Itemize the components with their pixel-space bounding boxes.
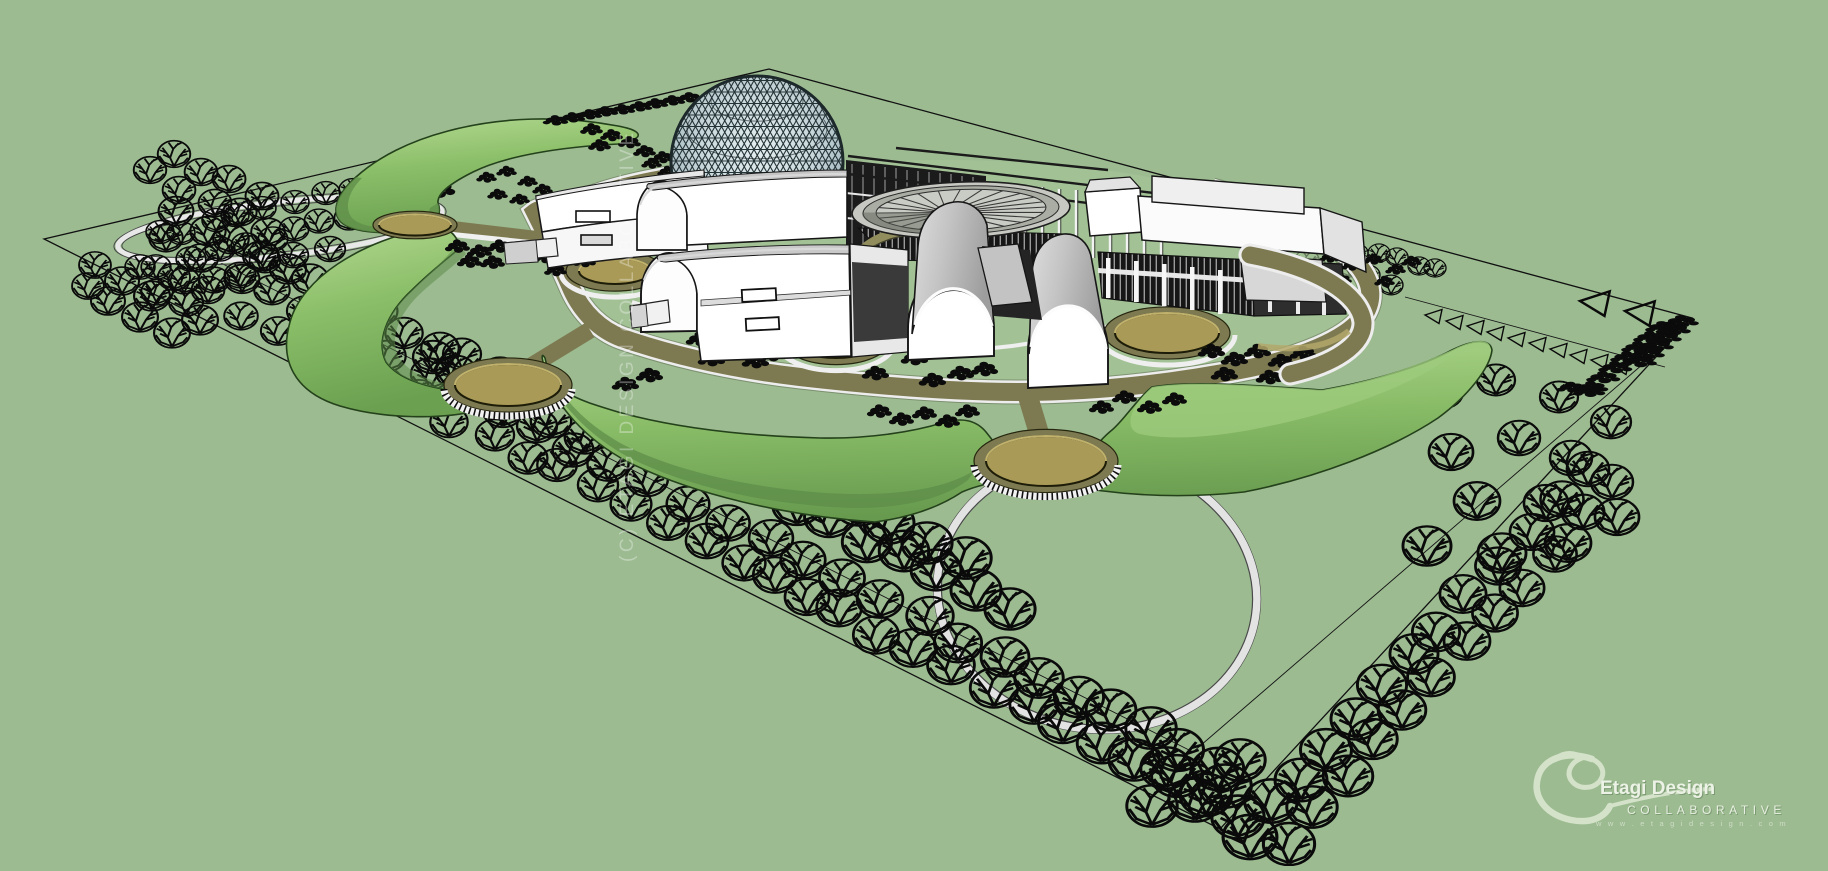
svg-text:w w w . e t a g i d e s i g n: w w w . e t a g i d e s i g n . c o m bbox=[1595, 819, 1788, 828]
svg-text:Etagi Design: Etagi Design bbox=[1600, 778, 1715, 799]
svg-text:(C) ETAGI DESIGN COLLABORATIVE: (C) ETAGI DESIGN COLLABORATIVE bbox=[617, 129, 638, 562]
svg-text:COLLABORATIVE: COLLABORATIVE bbox=[1627, 803, 1786, 817]
